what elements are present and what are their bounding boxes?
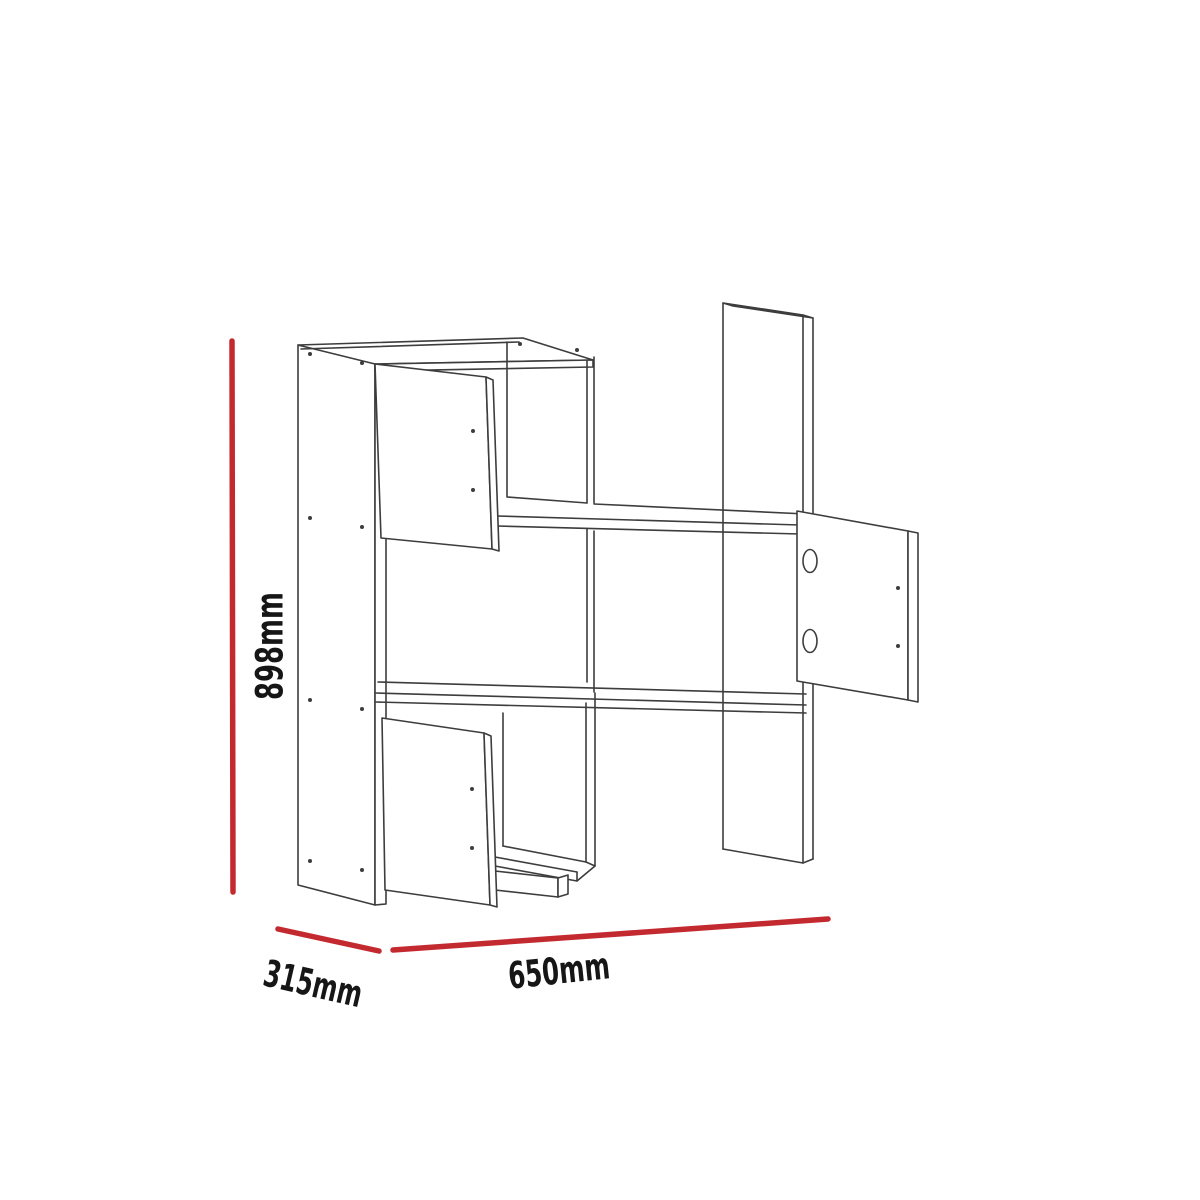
hinge-cup-hole-top xyxy=(803,550,817,573)
right-panel-top-edge-face xyxy=(723,303,813,318)
hinge-cup-hole-bottom xyxy=(803,630,817,653)
right-door-face xyxy=(797,511,908,700)
height-dimension-line xyxy=(232,341,233,892)
center-divider xyxy=(586,529,595,866)
right-panel-bottom-edge xyxy=(723,849,813,863)
middle-shelf-back-edge xyxy=(594,504,806,514)
middle-shelf-front-top-edge xyxy=(497,516,800,525)
right-door-open xyxy=(797,511,918,702)
bottom-door-face xyxy=(382,718,490,905)
width-dimension-label: 650mm xyxy=(506,944,612,997)
middle-shelf xyxy=(497,504,806,534)
bracket-face xyxy=(495,871,558,897)
bottom-shelf-front-top-edge xyxy=(495,857,577,872)
middle-shelf-front-bottom-edge xyxy=(497,526,800,534)
bottom-shelf-back-edge xyxy=(503,846,586,862)
wall-bracket xyxy=(495,871,568,897)
top-box-right-wall xyxy=(587,357,594,503)
right-door-edge xyxy=(908,531,918,702)
left-panel-face xyxy=(298,345,375,905)
shelf-line-drawing xyxy=(298,303,918,907)
lower-shelf xyxy=(376,682,806,713)
top-door-face xyxy=(375,364,492,549)
left-side-panel xyxy=(298,345,386,905)
bottom-door-open xyxy=(382,718,497,907)
divider-lower-edges xyxy=(586,693,595,866)
width-dimension-line xyxy=(393,919,828,950)
lower-shelf-back-edge xyxy=(378,682,806,694)
depth-dimension-line xyxy=(278,929,379,951)
depth-dimension-label: 315mm xyxy=(259,952,366,1016)
height-dimension-label: 898mm xyxy=(249,592,292,700)
bracket-edge xyxy=(558,875,568,897)
divider-upper-edges xyxy=(587,529,594,692)
top-door-open xyxy=(375,364,499,551)
diagram-page: 898mm 315mm 650mm xyxy=(0,0,1200,1200)
furniture-dimension-diagram: 898mm 315mm 650mm xyxy=(0,0,1200,1200)
